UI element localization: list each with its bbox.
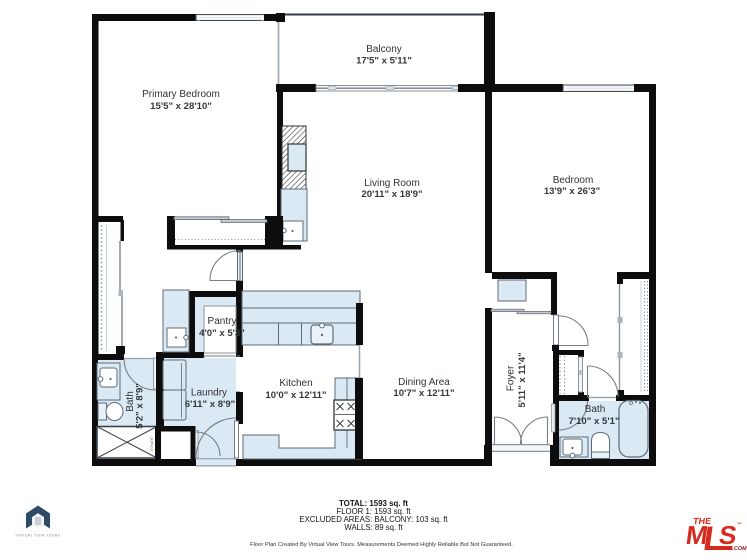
- svg-text:Living Room: Living Room: [364, 178, 420, 189]
- svg-text:VIRTUAL VIEW TOURS: VIRTUAL VIEW TOURS: [15, 534, 60, 538]
- svg-text:Laundry: Laundry: [191, 388, 227, 399]
- svg-text:Foyer: Foyer: [506, 365, 517, 391]
- svg-text:Primary Bedroom: Primary Bedroom: [142, 89, 220, 100]
- svg-text:Dining Area: Dining Area: [398, 377, 450, 388]
- svg-text:™: ™: [736, 522, 742, 528]
- svg-text:10'7" x 12'11": 10'7" x 12'11": [393, 388, 454, 399]
- svg-text:20'11" x 18'9": 20'11" x 18'9": [361, 189, 422, 200]
- svg-text:13'9" x 26'3": 13'9" x 26'3": [544, 186, 600, 197]
- svg-text:Balcony: Balcony: [366, 44, 402, 55]
- svg-text:5'11" x 11'4": 5'11" x 11'4": [517, 352, 528, 407]
- svg-text:Bedroom: Bedroom: [553, 175, 594, 186]
- svg-text:5'2" x 8'9": 5'2" x 8'9": [135, 383, 146, 429]
- svg-text:15'5" x 28'10": 15'5" x 28'10": [150, 101, 212, 112]
- svg-text:.COM: .COM: [732, 546, 747, 552]
- svg-text:10'0" x 12'11": 10'0" x 12'11": [265, 390, 326, 401]
- svg-text:4'0" x 5'3": 4'0" x 5'3": [199, 328, 245, 339]
- svg-text:Kitchen: Kitchen: [279, 378, 312, 389]
- svg-text:17'5" x 5'11": 17'5" x 5'11": [356, 56, 412, 67]
- svg-text:3'0"x8'6": 3'0"x8'6": [149, 436, 154, 452]
- svg-text:Bath: Bath: [585, 404, 606, 415]
- svg-text:Pantry: Pantry: [208, 316, 237, 327]
- svg-text:7'10" x 5'1": 7'10" x 5'1": [568, 416, 619, 427]
- svg-text:6'11" x 8'9": 6'11" x 8'9": [185, 399, 235, 410]
